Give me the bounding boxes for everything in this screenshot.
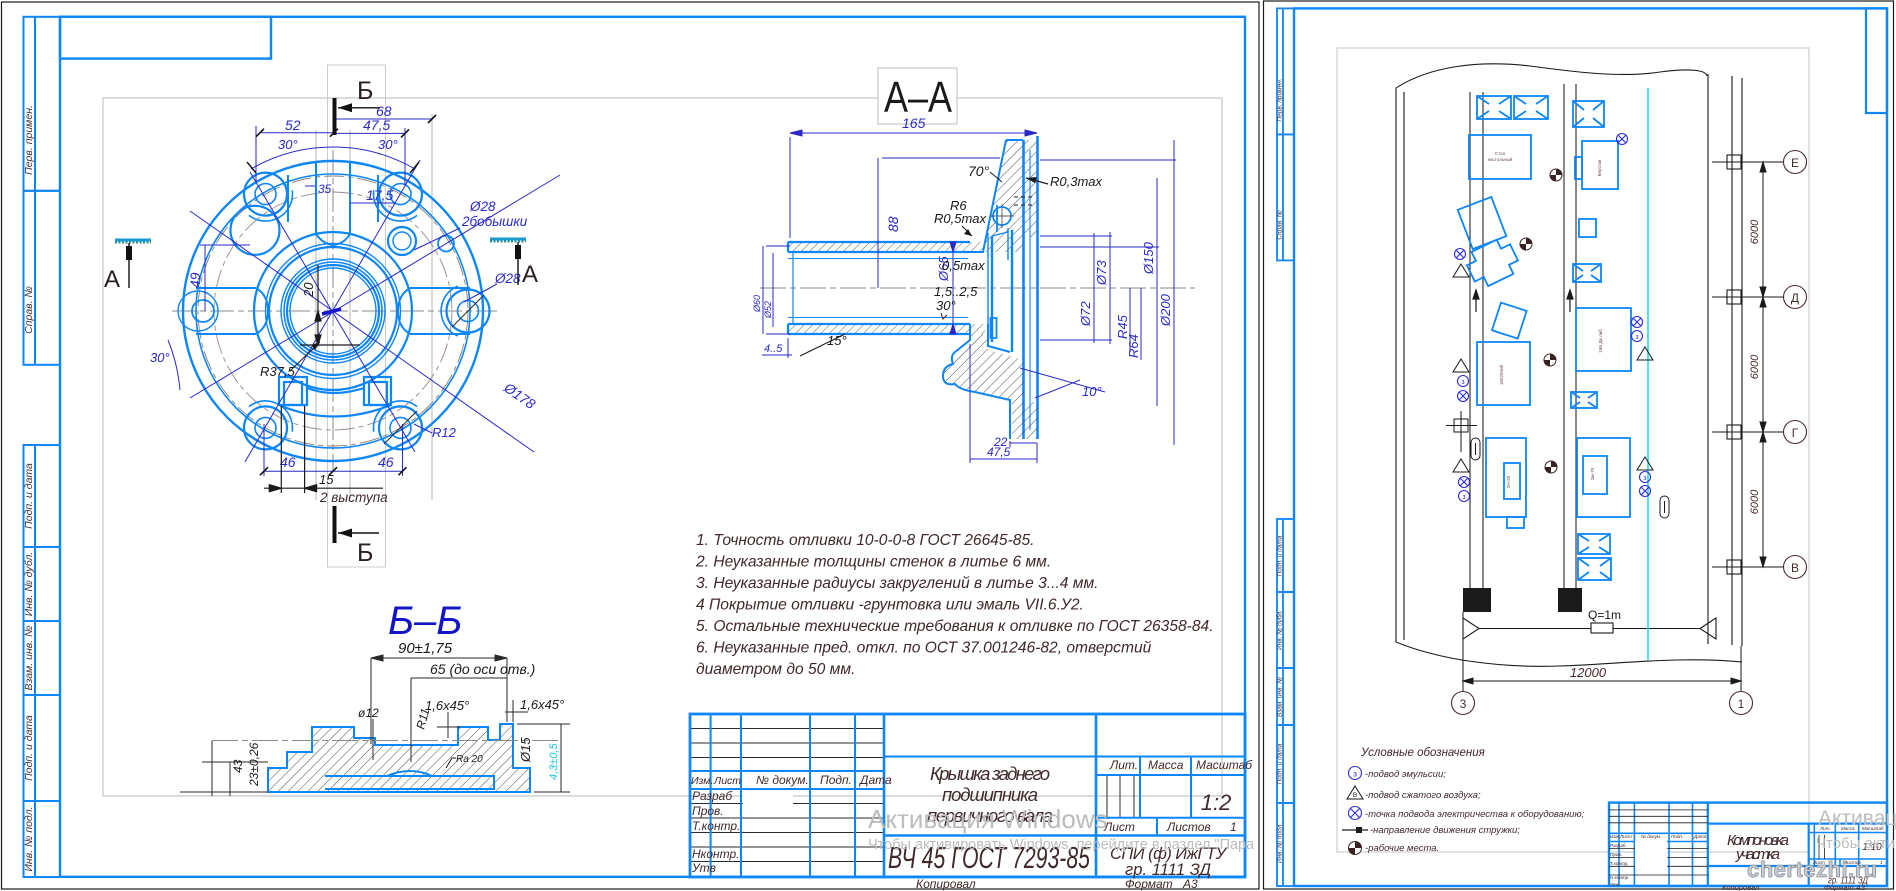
svg-text:-направление движения стружки;: -направление движения стружки; (1370, 825, 1520, 836)
svg-text:Изм.: Изм. (1610, 834, 1620, 839)
svg-text:46: 46 (280, 454, 296, 470)
svg-text:Ø15: Ø15 (518, 737, 533, 763)
svg-text:Инв. № подл.: Инв. № подл. (1276, 823, 1284, 864)
svg-text:з: з (1353, 769, 1357, 779)
svg-text:Ø60: Ø60 (752, 295, 762, 313)
svg-text:Инв. № подл.: Инв. № подл. (23, 806, 35, 871)
svg-text:диаметром до 50 мм.: диаметром до 50 мм. (696, 661, 855, 678)
svg-text:Дата: Дата (858, 773, 892, 787)
svg-text:Масштаб: Масштаб (1196, 758, 1253, 772)
svg-text:Лист: Лист (1103, 820, 1135, 834)
svg-text:Подп.: Подп. (1671, 834, 1683, 839)
svg-text:30°: 30° (378, 137, 398, 152)
svg-text:Инв. № дубл.: Инв. № дубл. (23, 552, 35, 617)
svg-text:В: В (1353, 792, 1357, 799)
svg-text:Формат А3: Формат А3 (1824, 883, 1866, 891)
svg-text:Перв. примен.: Перв. примен. (1277, 78, 1284, 121)
svg-text:Е: Е (1791, 156, 1799, 170)
svg-text:43: 43 (231, 759, 245, 773)
svg-text:1: 1 (1738, 697, 1745, 711)
svg-text:Подп.: Подп. (820, 773, 852, 787)
svg-text:№ докум.: № докум. (1641, 834, 1661, 839)
svg-text:Перв. примен.: Перв. примен. (23, 105, 35, 175)
svg-text:Подп. и дата: Подп. и дата (1276, 535, 1284, 576)
svg-text:Пров.: Пров. (1610, 852, 1622, 857)
svg-text:Копировал: Копировал (916, 877, 976, 891)
svg-text:-рабочие места.: -рабочие места. (1365, 843, 1439, 854)
svg-text:30°: 30° (278, 137, 298, 152)
svg-text:Подп. и дата: Подп. и дата (23, 463, 35, 529)
svg-text:Г: Г (1792, 426, 1799, 440)
svg-text:6. Неуказанные пред. откл. по: 6. Неуказанные пред. откл. по ОСТ 37.001… (696, 640, 1152, 657)
svg-text:1,6х45°: 1,6х45° (520, 697, 564, 712)
svg-text:R0,5max: R0,5max (934, 211, 987, 226)
svg-text:12000: 12000 (1570, 665, 1607, 680)
svg-text:А: А (522, 261, 538, 288)
svg-text:Нконтр.: Нконтр. (692, 847, 739, 861)
svg-text:з: з (1635, 334, 1638, 341)
svg-text:Листов: Листов (1166, 820, 1211, 834)
svg-text:Разраб.: Разраб. (1610, 843, 1627, 848)
svg-text:1: 1 (1880, 860, 1883, 865)
svg-text:5. Остальные технические требо: 5. Остальные технические требования к от… (696, 618, 1214, 635)
svg-text:Ø28: Ø28 (494, 271, 521, 286)
svg-text:Н.контр.: Н.контр. (1610, 875, 1629, 880)
svg-text:Масса: Масса (1148, 758, 1184, 772)
svg-text:Формат: Формат (1125, 877, 1173, 891)
svg-text:Ø200: Ø200 (1158, 293, 1173, 327)
svg-text:Т.контр.: Т.контр. (1610, 861, 1629, 866)
svg-text:А: А (104, 266, 120, 293)
svg-text:R12: R12 (432, 425, 457, 440)
svg-text:2 выступа: 2 выступа (319, 490, 388, 505)
svg-text:Активац: Активац (1818, 807, 1896, 830)
svg-text:1,6х45°: 1,6х45° (425, 698, 469, 713)
svg-text:Ra 20: Ra 20 (456, 754, 483, 765)
svg-text:Лит.: Лит. (1109, 758, 1138, 772)
svg-text:30°: 30° (936, 298, 956, 313)
svg-text:chertezhi.ru: chertezhi.ru (1747, 857, 1878, 882)
svg-text:70°: 70° (968, 163, 990, 179)
svg-text:Утв.: Утв. (1610, 882, 1620, 887)
svg-text:В: В (1791, 561, 1799, 575)
svg-text:Т.контр.: Т.контр. (692, 819, 740, 833)
svg-text:Ø28: Ø28 (469, 199, 496, 214)
svg-text:6000: 6000 (1749, 354, 1761, 379)
svg-text:Разраб: Разраб (692, 789, 733, 803)
svg-text:3: 3 (1460, 697, 1467, 711)
svg-text:Q=1m: Q=1m (1588, 608, 1621, 622)
svg-text:Крышка заднего: Крышка заднего (930, 763, 1050, 784)
svg-text:6000: 6000 (1749, 489, 1761, 514)
svg-text:16К20либ: 16К20либ (1499, 364, 1504, 385)
svg-text:2Н-20: 2Н-20 (1506, 475, 1511, 488)
svg-text:23±0,26: 23±0,26 (247, 742, 261, 787)
svg-text:2. Неуказанные толщины стенок: 2. Неуказанные толщины стенок в литье 6 … (695, 554, 1051, 571)
svg-text:1,5..2,5: 1,5..2,5 (934, 284, 978, 299)
svg-text:подшипника: подшипника (942, 784, 1038, 805)
svg-text:88: 88 (885, 216, 901, 232)
svg-text:6000: 6000 (1749, 219, 1761, 244)
svg-text:Пров.: Пров. (692, 804, 724, 818)
svg-text:з: з (1462, 494, 1465, 501)
svg-text:Ø72: Ø72 (1078, 301, 1093, 327)
svg-text:R37,5: R37,5 (260, 364, 295, 379)
svg-text:4,3±0,5: 4,3±0,5 (548, 742, 560, 780)
svg-text:Инв. № дубл.: Инв. № дубл. (1276, 610, 1284, 650)
svg-text:47,5: 47,5 (987, 445, 1011, 459)
svg-text:настольный: настольный (1488, 156, 1513, 162)
svg-text:35: 35 (318, 182, 332, 196)
svg-text:Утв: Утв (691, 861, 716, 875)
svg-text:Лист: Лист (1619, 834, 1632, 839)
svg-text:Зм-70: Зм-70 (1590, 467, 1595, 480)
svg-text:Активация Windows: Активация Windows (868, 804, 1108, 834)
svg-text:3. Неуказанные радиусы закругл: 3. Неуказанные радиусы закруглений в лит… (696, 575, 1099, 592)
svg-text:30°: 30° (150, 350, 170, 365)
svg-text:165: 165 (902, 115, 926, 131)
svg-text:ø12: ø12 (358, 706, 379, 720)
svg-text:90±1,75: 90±1,75 (398, 640, 453, 657)
svg-text:Справ. №: Справ. № (1277, 210, 1284, 240)
svg-text:-подвод эмульсии;: -подвод эмульсии; (1365, 769, 1446, 780)
svg-text:-подвод сжатого воздуха;: -подвод сжатого воздуха; (1365, 790, 1481, 801)
svg-text:з: з (1461, 379, 1464, 386)
svg-text:1:2: 1:2 (1201, 790, 1232, 815)
svg-text:Подп. и дата: Подп. и дата (1276, 743, 1284, 784)
svg-text:4 Покрытие отливки -грунтовка: 4 Покрытие отливки -грунтовка или эмаль … (696, 597, 1084, 614)
svg-text:2бобышки: 2бобышки (461, 214, 528, 229)
svg-text:Ø150: Ø150 (1141, 241, 1156, 275)
svg-text:Дата: Дата (1693, 834, 1707, 839)
svg-text:Д: Д (1791, 291, 1799, 305)
svg-text:Справ. №: Справ. № (23, 286, 35, 334)
svg-text:52: 52 (285, 117, 301, 133)
svg-text:Ø52: Ø52 (763, 301, 773, 319)
svg-text:4..5: 4..5 (764, 343, 783, 355)
svg-text:Б–Б: Б–Б (388, 599, 462, 643)
svg-text:1. Точность отливки 10-0-0-8 Г: 1. Точность отливки 10-0-0-8 ГОСТ 26645-… (696, 532, 1034, 549)
svg-text:з: з (1643, 475, 1646, 482)
svg-text:Б: Б (357, 539, 373, 567)
svg-text:Б: Б (357, 77, 373, 105)
svg-text:Подп. и дата: Подп. и дата (23, 715, 35, 781)
svg-text:17,5: 17,5 (366, 187, 393, 203)
svg-text:А3: А3 (1182, 877, 1198, 891)
svg-text:№ докум.: № докум. (756, 773, 809, 787)
svg-text:65 (до оси отв.): 65 (до оси отв.) (430, 661, 535, 677)
svg-text:-точка подвода электричества: -точка подвода электричества к оборудова… (1365, 809, 1585, 820)
svg-text:20: 20 (301, 282, 316, 298)
svg-text:Взам. инв. №: Взам. инв. № (1277, 677, 1284, 717)
svg-text:Ø73: Ø73 (1094, 260, 1109, 286)
svg-text:47,5: 47,5 (363, 117, 390, 133)
svg-text:Условные обозначения: Условные обозначения (1360, 747, 1485, 759)
svg-text:Лист: Лист (713, 775, 741, 787)
svg-text:0,5max: 0,5max (942, 258, 985, 273)
svg-text:49: 49 (187, 272, 203, 288)
svg-text:Изм.: Изм. (691, 775, 713, 787)
svg-text:Копировал: Копировал (1722, 883, 1760, 891)
svg-text:Стол: Стол (1495, 151, 1506, 156)
svg-text:Чтобы акти: Чтобы акти (1816, 835, 1895, 852)
svg-text:Взам. инв. №: Взам. инв. № (23, 626, 35, 691)
svg-text:16Б Дв либ: 16Б Дв либ (1598, 329, 1603, 353)
svg-text:R64: R64 (1126, 334, 1141, 358)
svg-text:15: 15 (319, 472, 334, 487)
svg-text:Чтобы активировать Windows, пе: Чтобы активировать Windows, перейдите в … (868, 837, 1255, 853)
svg-text:1: 1 (1230, 820, 1237, 834)
svg-text:R0,3max: R0,3max (1050, 174, 1103, 189)
svg-text:15°: 15° (827, 333, 847, 348)
svg-text:46: 46 (378, 454, 394, 470)
svg-text:Верстак: Верстак (1597, 160, 1602, 177)
